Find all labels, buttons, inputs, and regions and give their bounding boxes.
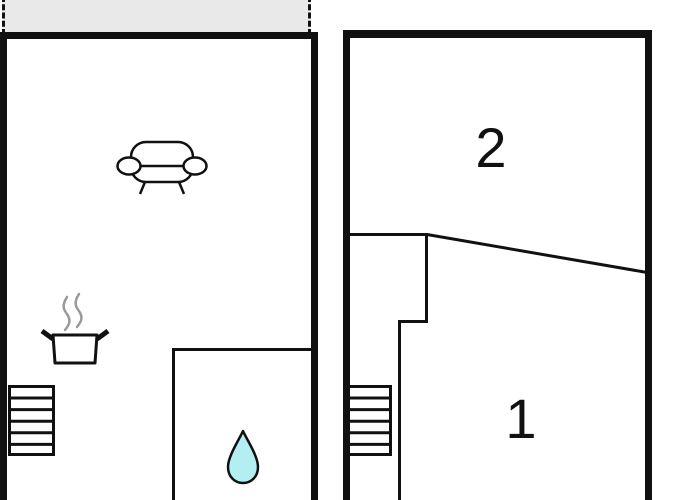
- cooking-pot-icon: [36, 290, 112, 368]
- stairs-icon: [8, 385, 55, 456]
- right-unit-right-wall: [645, 30, 652, 500]
- corridor-wall-upper: [425, 233, 428, 323]
- bathroom-wall-horizontal: [172, 348, 311, 351]
- left-unit-left-wall: [0, 32, 7, 500]
- sofa-icon: [116, 138, 208, 196]
- floor-plan: 2 1: [0, 0, 700, 500]
- stairs-icon: [347, 385, 392, 456]
- balcony-terrace: [2, 0, 311, 35]
- left-unit-right-wall: [311, 32, 318, 500]
- corridor-wall-lower: [398, 320, 401, 500]
- room-1-label: 1: [491, 389, 551, 449]
- left-unit-top-wall: [0, 32, 318, 39]
- water-drop-icon: [224, 428, 262, 486]
- bathroom-wall-vertical: [172, 348, 175, 500]
- room-2-label: 2: [461, 118, 521, 178]
- room-divider-horizontal: [350, 233, 428, 236]
- right-unit-top-wall: [343, 30, 652, 38]
- corridor-wall-jog: [398, 320, 428, 323]
